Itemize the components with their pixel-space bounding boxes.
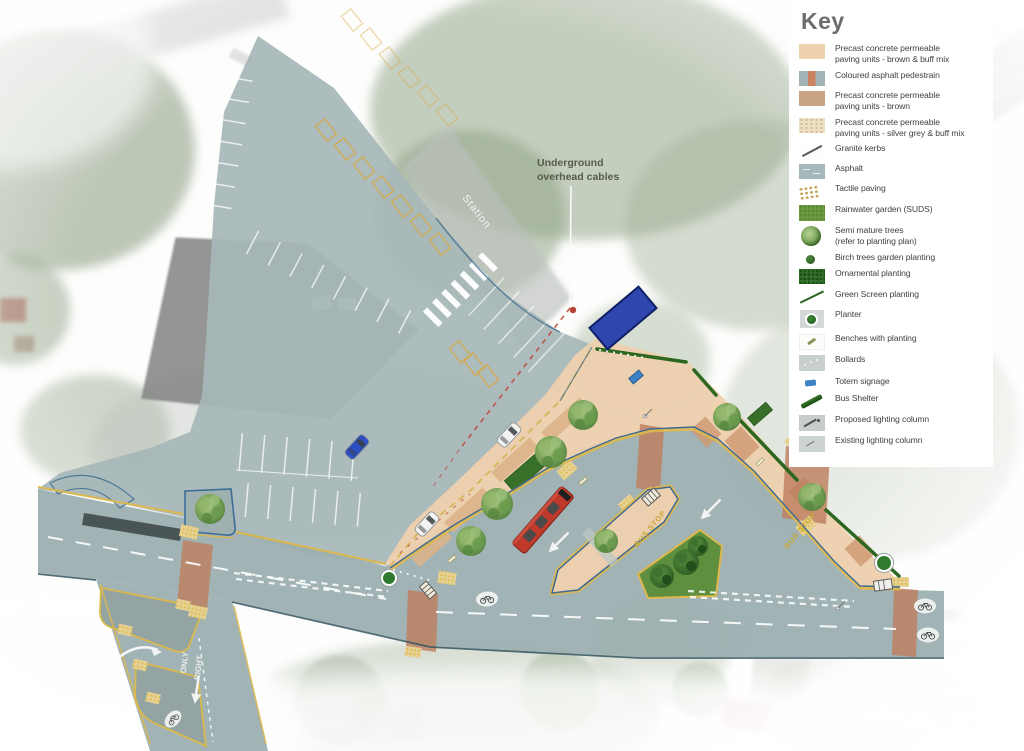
- tactile-dots-swatch-icon: [798, 185, 820, 201]
- cycle-symbol: [914, 599, 936, 614]
- swatch-brown-swatch-icon: [799, 91, 825, 106]
- legend-item-paving-brown-buff: Precast concrete permeable paving units …: [799, 43, 987, 65]
- legend-item-label: Asphalt: [829, 163, 863, 174]
- site-plan: BUS STOP BUS STOP: [0, 0, 1024, 751]
- legend-item-label: Coloured asphalt pedestrain: [829, 70, 940, 81]
- legend-item-label: Precast concrete permeable paving units …: [829, 90, 940, 112]
- legend-item-birch-trees: Birch trees garden planting: [799, 252, 987, 264]
- legend-item-green-screen: Green Screen planting: [799, 289, 987, 305]
- legend-item-tactile-paving: Tactile paving: [799, 183, 987, 199]
- legend-item-label: Totem signage: [829, 376, 890, 387]
- legend-item-totem-signage: Totem signage: [799, 376, 987, 389]
- swatch-tan-swatch-icon: [799, 44, 825, 59]
- legend-item-label: Planter: [829, 309, 862, 320]
- legend-item-rainwater-garden: Rainwater garden (SUDS): [799, 204, 987, 221]
- bench-dash-swatch-icon: [799, 334, 825, 350]
- legend-item-coloured-asphalt: Coloured asphalt pedestrain: [799, 70, 987, 86]
- legend-item-label: Bus Shelter: [829, 393, 878, 404]
- bus-shelter: [873, 579, 892, 591]
- legend-item-bus-shelter: Bus Shelter: [799, 393, 987, 409]
- legend-item-existing-lighting: Existing lighting column: [799, 435, 987, 452]
- existing-light-swatch-icon: [799, 436, 825, 452]
- legend-item-label: Ornamental planting: [829, 268, 911, 279]
- swatch-ornamental-swatch-icon: [799, 269, 825, 284]
- bollards-dots-swatch-icon: [799, 355, 825, 371]
- legend-item-label: Benches with planting: [829, 333, 917, 344]
- proposed-light-swatch-icon: [799, 415, 825, 431]
- legend-item-label: Bollards: [829, 354, 865, 365]
- legend-item-label: Precast concrete permeable paving units …: [829, 117, 964, 139]
- legend-item-asphalt: Asphalt: [799, 163, 987, 179]
- legend-panel: Key Precast concrete permeable paving un…: [789, 4, 993, 467]
- legend-item-label: Precast concrete permeable paving units …: [829, 43, 949, 65]
- swatch-speckled-swatch-icon: [799, 118, 825, 133]
- planter-swatch-icon: [800, 310, 824, 328]
- legend-title: Key: [801, 8, 987, 35]
- swatch-asphalt-swatch-icon: [799, 164, 825, 179]
- swatch-coloured-asphalt-swatch-icon: [799, 71, 825, 86]
- legend-item-benches: Benches with planting: [799, 333, 987, 350]
- legend-item-semi-mature-trees: Semi mature trees (refer to planting pla…: [799, 225, 987, 247]
- legend-item-granite-kerbs: Granite kerbs: [799, 143, 987, 158]
- legend-item-label: Granite kerbs: [829, 143, 885, 154]
- legend-item-planter: Planter: [799, 309, 987, 328]
- legend-item-paving-brown: Precast concrete permeable paving units …: [799, 90, 987, 112]
- green-screen-line-swatch-icon: [799, 290, 825, 305]
- birch-dot-swatch-icon: [806, 255, 815, 264]
- totem-swatch-icon: [799, 377, 825, 389]
- tree-swatch-icon: [801, 226, 821, 246]
- legend-item-label: Proposed lighting column: [829, 414, 929, 425]
- legend-item-proposed-lighting: Proposed lighting column: [799, 414, 987, 431]
- swatch-green-swatch-icon: [799, 205, 825, 221]
- legend-item-label: Existing lighting column: [829, 435, 922, 446]
- legend-item-paving-silver-buff: Precast concrete permeable paving units …: [799, 117, 987, 139]
- legend-item-label: Rainwater garden (SUDS): [829, 204, 933, 215]
- kerb-line-swatch-icon: [799, 144, 825, 158]
- cycle-symbol: [917, 628, 939, 643]
- legend-item-label: Birch trees garden planting: [829, 252, 935, 263]
- legend-item-ornamental-planting: Ornamental planting: [799, 268, 987, 284]
- legend-items: Precast concrete permeable paving units …: [799, 43, 987, 452]
- underground-cables-label-line2: overhead cables: [537, 171, 619, 183]
- legend-item-label: Semi mature trees (refer to planting pla…: [829, 225, 917, 247]
- underground-cables-label-line1: Underground: [537, 157, 604, 169]
- legend-item-label: Tactile paving: [829, 183, 886, 194]
- legend-item-bollards: Bollards: [799, 354, 987, 371]
- bus-shelter-bar-swatch-icon: [799, 394, 825, 409]
- legend-item-label: Green Screen planting: [829, 289, 919, 300]
